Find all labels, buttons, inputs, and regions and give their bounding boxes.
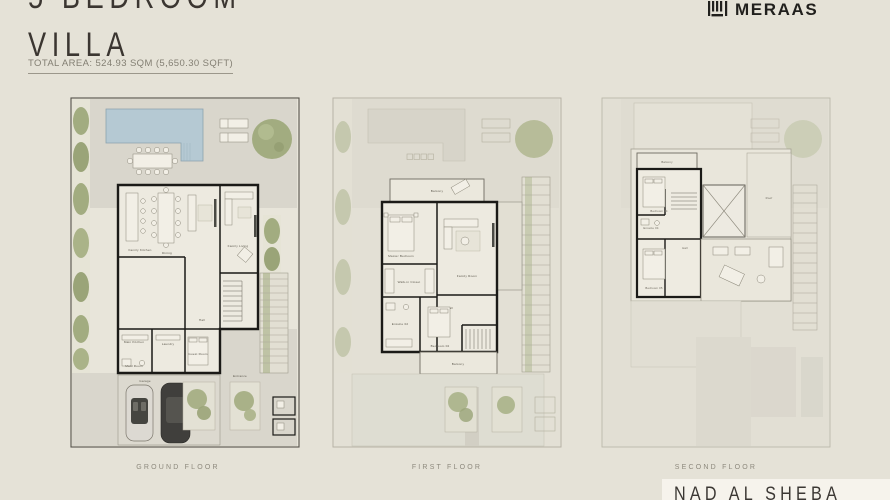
room-label: Ensuite 02 — [392, 322, 409, 326]
second-floor-drawing: Balcony Bedroom 04 Ensuite 04 Bedroom 05… — [601, 97, 831, 448]
pergola — [522, 177, 550, 372]
title-line1: 5 BEDROOM — [28, 0, 242, 16]
room-label: Hall — [682, 246, 688, 250]
brand-logo: MERAAS — [708, 1, 818, 19]
location-box: NAD AL SHEBA — [662, 479, 890, 500]
roof-area: Roof — [747, 153, 791, 237]
second-floor-plan: Balcony Bedroom 04 Ensuite 04 Bedroom 05… — [601, 97, 831, 448]
skylight-void — [703, 185, 745, 237]
room-label: Ensuite 04 — [643, 226, 658, 230]
kitchen-island — [126, 193, 138, 241]
brand-name: MERAAS — [735, 1, 818, 19]
room-label: Bedroom 02 — [431, 344, 450, 348]
room-label: Bedroom 05 — [645, 286, 662, 290]
room-label: Walk-in Closet — [398, 280, 421, 284]
sofa — [444, 219, 478, 227]
room-label: Master Bedroom — [388, 254, 414, 258]
location-name: NAD AL SHEBA — [674, 484, 841, 500]
room-label: Maid Room — [125, 364, 143, 368]
room-label: Dining — [162, 251, 172, 255]
room-label: Bedroom 04 — [650, 209, 667, 213]
tv — [214, 199, 217, 227]
room-label: Garage — [139, 379, 151, 383]
ground-floor-label: GROUND FLOOR — [63, 464, 293, 471]
car-light — [126, 385, 153, 441]
tree — [252, 119, 292, 159]
room-label: Balcony — [431, 189, 444, 193]
tv — [492, 223, 495, 247]
first-floor-plan: Balcony Master Bedroom Walk-in Closet Fa… — [332, 97, 562, 448]
room-label: Family Living — [228, 244, 249, 248]
balcony: Balcony — [637, 153, 697, 169]
balcony-bottom: Balcony — [420, 352, 497, 374]
tree — [515, 120, 553, 158]
ground-floor-drawing: Family Kitchen Dining Family Living Hall… — [70, 97, 300, 448]
meraas-logo-icon — [708, 1, 730, 19]
room-label: Balcony — [661, 160, 673, 164]
total-area-text: TOTAL AREA: 524.93 SQM (5,650.30 SQFT) — [28, 58, 233, 74]
second-floor-label: SECOND FLOOR — [601, 464, 831, 471]
ground-floor-plan: Family Kitchen Dining Family Living Hall… — [70, 97, 300, 448]
room-label: Roof — [766, 196, 773, 200]
roof-terrace — [701, 239, 791, 301]
room-label: Family Kitchen — [128, 248, 151, 252]
hedge-left — [72, 99, 90, 373]
room-label: Main Kitchen — [124, 340, 144, 344]
sofa — [188, 195, 196, 231]
roof-below-ghost — [352, 374, 555, 446]
hedge-right — [263, 215, 281, 273]
room-label: Balcony — [452, 362, 465, 366]
terrace — [497, 202, 522, 290]
pergola — [793, 185, 817, 330]
room-label: Laundry — [162, 342, 175, 346]
room-label: Family Room — [457, 274, 478, 278]
first-floor-label: FIRST FLOOR — [332, 464, 562, 471]
room-label: Hall — [199, 318, 205, 322]
room-label: Guest Room — [188, 352, 208, 356]
room-label: Entrance — [233, 374, 247, 378]
balcony-top: Balcony — [390, 179, 484, 202]
house-second: Bedroom 04 Ensuite 04 Bedroom 05 Hall — [637, 169, 701, 297]
hedge-left-ghost — [334, 99, 352, 373]
first-floor-drawing: Balcony Master Bedroom Walk-in Closet Fa… — [332, 97, 562, 448]
pergola — [260, 273, 288, 373]
